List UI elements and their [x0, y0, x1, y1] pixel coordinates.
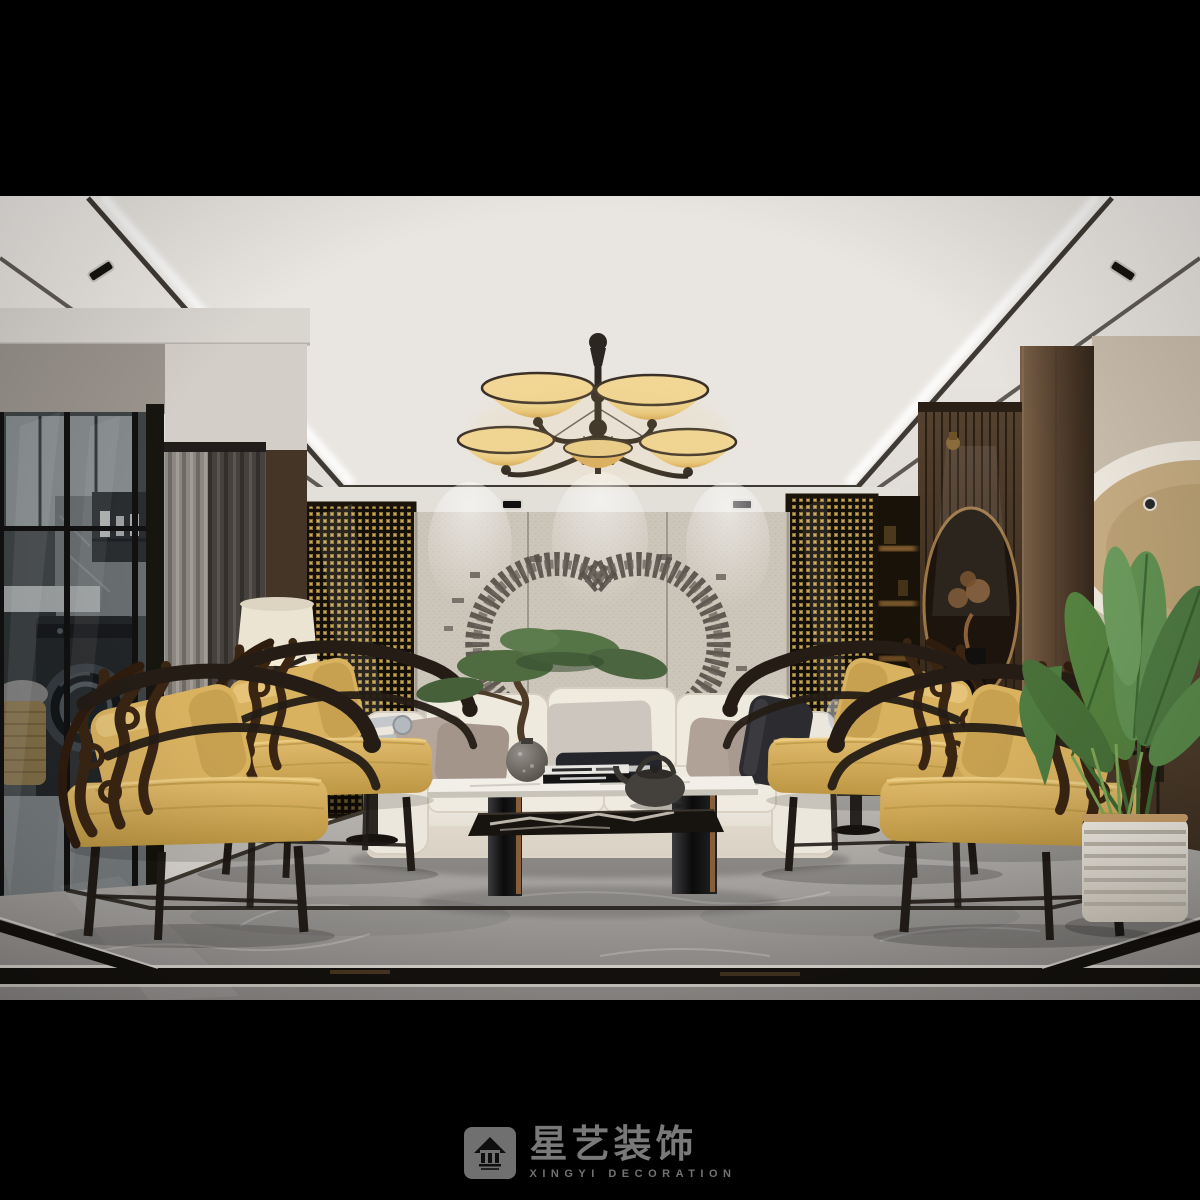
white-ribbed-planter [1082, 814, 1188, 922]
watermark: 星艺装饰 XINGYI DECORATION [0, 1126, 1200, 1180]
living-room-render-photo [0, 196, 1200, 1000]
xingyi-logo-icon [464, 1127, 516, 1179]
brand-name-chinese: 星艺装饰 [530, 1126, 698, 1164]
watermark-text: 星艺装饰 XINGYI DECORATION [530, 1126, 737, 1180]
screenshot-canvas: 星艺装饰 XINGYI DECORATION [0, 0, 1200, 1200]
letterbox-top [0, 0, 1200, 196]
lower-tier-black-marble [468, 810, 724, 836]
brand-name-english: XINGYI DECORATION [530, 1169, 737, 1180]
